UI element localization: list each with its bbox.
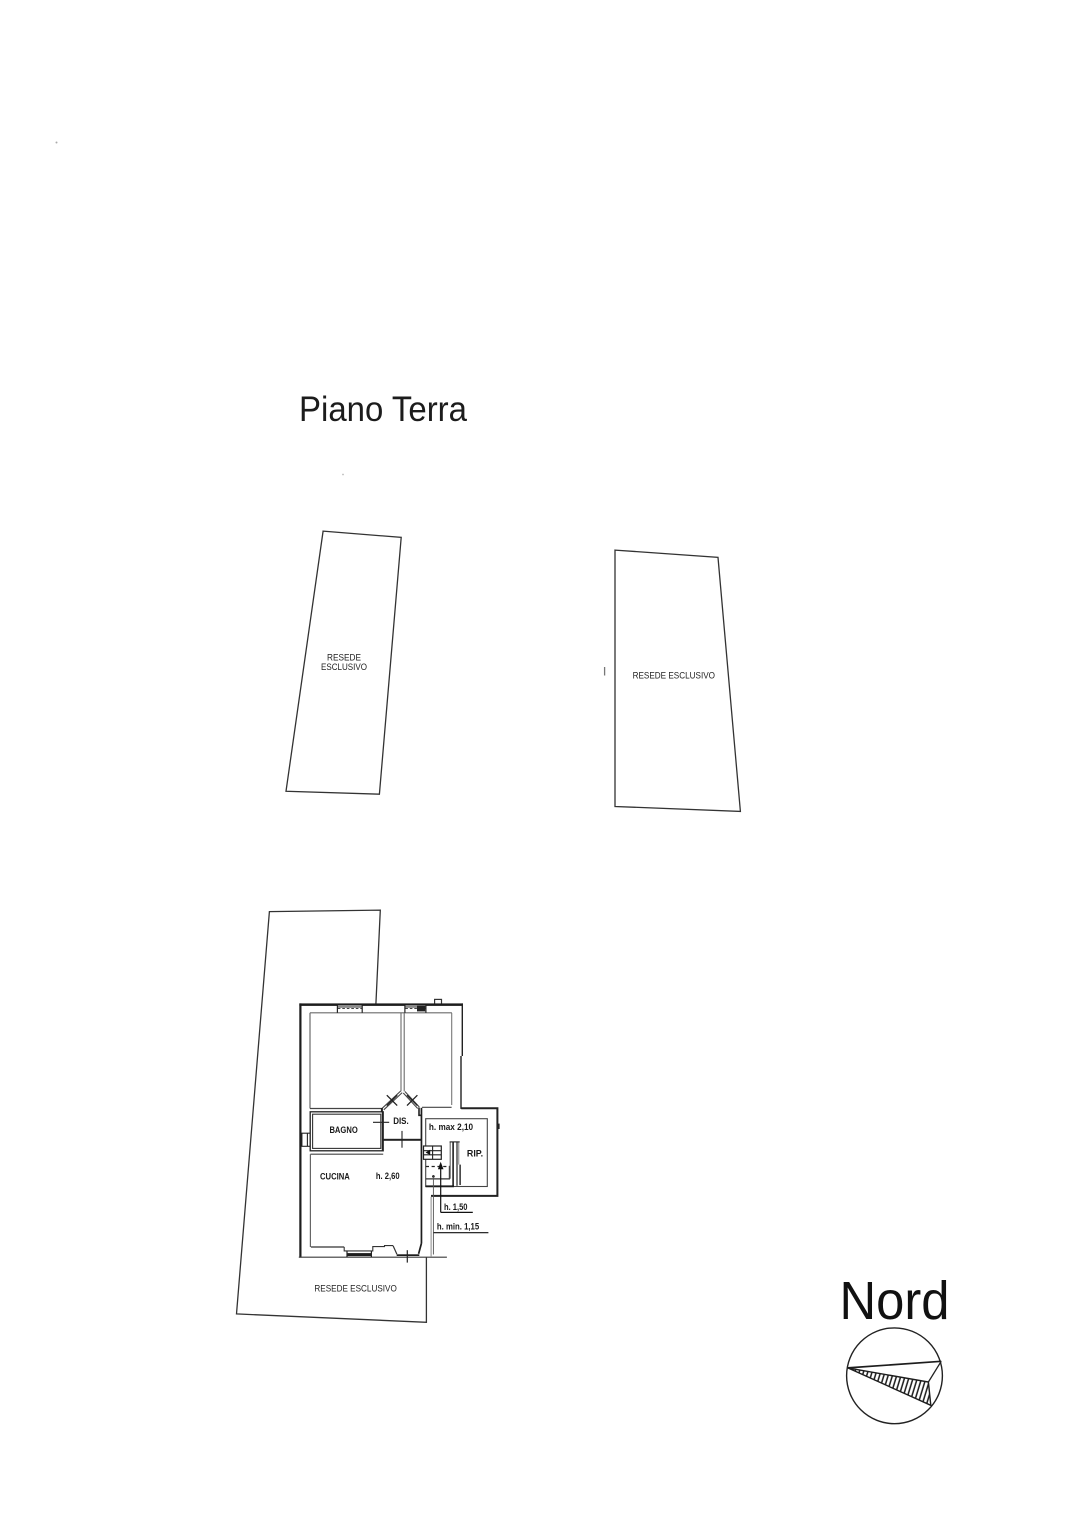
svg-text:RESEDE ESCLUSIVO: RESEDE ESCLUSIVO [633,671,715,681]
svg-text:h. 1,50: h. 1,50 [444,1202,468,1213]
svg-text:Piano Terra: Piano Terra [299,390,467,429]
svg-text:RIP.: RIP. [467,1149,483,1160]
svg-text:BAGNO: BAGNO [329,1125,357,1135]
svg-text:h. 2,60: h. 2,60 [376,1171,400,1182]
svg-text:ESCLUSIVO: ESCLUSIVO [321,662,367,672]
svg-text:DIS.: DIS. [393,1116,409,1127]
svg-text:h. min. 1,15: h. min. 1,15 [437,1222,480,1233]
svg-text:h. max 2,10: h. max 2,10 [429,1122,473,1133]
svg-text:CUCINA: CUCINA [320,1171,350,1182]
svg-text:RESEDE ESCLUSIVO: RESEDE ESCLUSIVO [314,1284,396,1294]
svg-text:Nord: Nord [840,1271,950,1331]
